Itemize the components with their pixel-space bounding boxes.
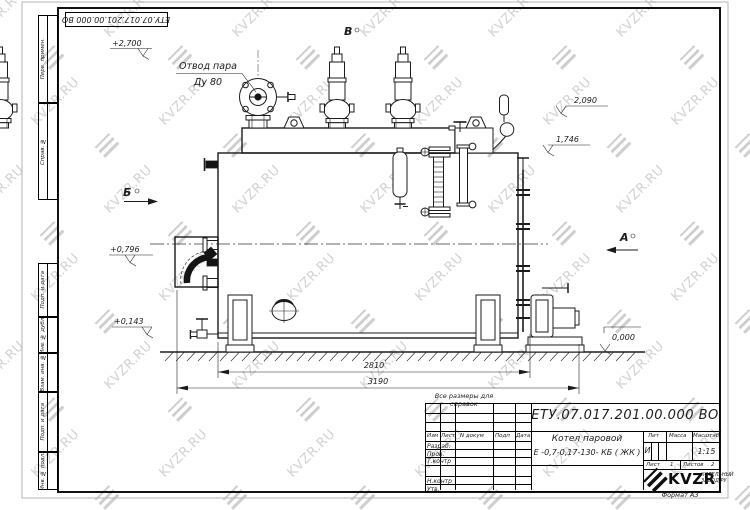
elev-0143-text: +0,143 <box>114 317 144 326</box>
callout-line1: Отвод пара <box>179 61 237 72</box>
view-b-text: Б <box>123 186 131 199</box>
elevation-2700: +2,700 <box>110 39 152 60</box>
elevation-0143: +0,143 <box>112 317 153 338</box>
tb-scale-label: Масштаб <box>693 433 719 439</box>
margin-cell-inv-podl: Инв. № подл. <box>38 452 58 490</box>
manhole <box>269 299 299 323</box>
tb-row-tkontr: Т.контр <box>427 458 451 465</box>
tb-sheets-label: Листов <box>683 462 704 468</box>
top-left-stamp: ЕТУ.07.017.201.00.000 ВО <box>65 12 168 27</box>
tb-row-nkontr: Н.контр <box>427 478 452 485</box>
tb-mass-label: Масса <box>669 433 687 439</box>
tb-scale-value: 1:15 <box>692 447 721 456</box>
tb-row-prov: Пров. <box>427 451 444 458</box>
separator-cylinder <box>393 148 408 209</box>
elevation-0000: 0,000 <box>600 327 641 355</box>
margin-cell-podp-data-1: Подп. и дата <box>38 263 58 317</box>
water-level-gauge <box>421 143 476 217</box>
steam-outlet-valve <box>240 79 296 129</box>
pressure-gauge-siphon <box>494 95 514 149</box>
tb-row-razrab: Разраб. <box>427 443 451 450</box>
dim-3190-text: 3190 <box>368 377 388 386</box>
tb-lit-value: И <box>645 446 651 455</box>
dim-2810-text: 2810 <box>364 361 384 370</box>
margin-cell-vzam-inv: Взам. инв. № <box>38 353 58 392</box>
elev-1746-text: 1,746 <box>556 135 579 144</box>
view-a-text: А <box>619 231 629 244</box>
tb-sheet-label: Лист <box>646 462 660 468</box>
feed-pump <box>526 283 584 352</box>
tb-lit-label: Лит <box>648 433 659 439</box>
ground-line <box>160 352 645 361</box>
margin-label: Инв. № подл. <box>40 452 46 490</box>
margin-label: Перв. примен. <box>40 38 46 79</box>
view-label-a: А <box>606 231 638 253</box>
elevation-1746: 1,746 <box>543 135 590 156</box>
tb-col-data: Дата <box>516 433 530 439</box>
margin-label: Подп. и дата <box>40 271 46 308</box>
view-label-b: Б <box>123 186 158 205</box>
safety-valve-3 <box>386 47 420 128</box>
tb-sheet-value: 1 <box>670 462 674 468</box>
tb-sheets-value: 2 <box>711 462 715 468</box>
tb-row-utv: Утв. <box>427 486 440 493</box>
view-v-text: В <box>344 25 352 38</box>
callout-line2: Ду 80 <box>193 77 222 88</box>
tb-col-ndocum: N докум <box>460 433 484 439</box>
margin-cell-podp-data-2: Подп. и дата <box>38 392 58 452</box>
safety-valve-2 <box>320 47 354 128</box>
margin-cell-sprav-no: Справ. № <box>38 103 58 200</box>
margin-label: Инв. № дубл. <box>40 316 46 354</box>
view-label-v: В <box>344 25 359 38</box>
tb-col-list: Лист <box>441 433 455 439</box>
manufacturer-logo: KVZR КОТЕЛЬНЫЙ ЗАВОД РУ <box>644 469 720 491</box>
tb-col-podp: Подп <box>495 433 510 439</box>
tb-doc-number: ЕТУ.07.017.201.00.000 ВО <box>531 408 719 423</box>
support-legs <box>226 295 502 352</box>
front-fittings <box>191 158 219 339</box>
top-left-stamp-text: ЕТУ.07.017.201.00.000 ВО <box>62 15 170 24</box>
boiler-body <box>218 128 518 338</box>
margin-label: Справ. № <box>40 138 46 165</box>
margin-label: Взам. инв. № <box>40 354 46 392</box>
elev-0000-text: 0,000 <box>612 333 635 342</box>
elev-0796-text: +0,796 <box>110 245 140 254</box>
elev-2090-text: 2,090 <box>574 96 597 105</box>
kvzr-logo-sub2: ЗАВОД РУ <box>701 479 733 485</box>
elev-2700-text: +2,700 <box>112 39 142 48</box>
kvzr-logo-subtext: КОТЕЛЬНЫЙ ЗАВОД РУ <box>701 473 733 485</box>
safety-valve <box>0 47 17 128</box>
elevation-2090: 2,090 <box>556 96 608 117</box>
kvzr-bars-icon <box>643 468 668 493</box>
tb-product-name: Котел паровой <box>532 434 642 444</box>
format-note: Формат А3 <box>640 491 720 499</box>
title-block: Изм Лист N докум Подп Дата Разраб. Пров.… <box>425 403 720 492</box>
margin-label: Подп. и дата <box>40 403 46 440</box>
tb-product-model: Е -0,7-0,17-130- КБ ( ЖК ) <box>530 448 644 457</box>
margin-cell-inv-dubl: Инв. № дубл. <box>38 317 58 353</box>
margin-cell-perv-primen: Перв. примен. <box>38 15 58 103</box>
tb-col-izm: Изм <box>427 433 438 439</box>
elevation-0796: +0,796 <box>109 245 153 266</box>
